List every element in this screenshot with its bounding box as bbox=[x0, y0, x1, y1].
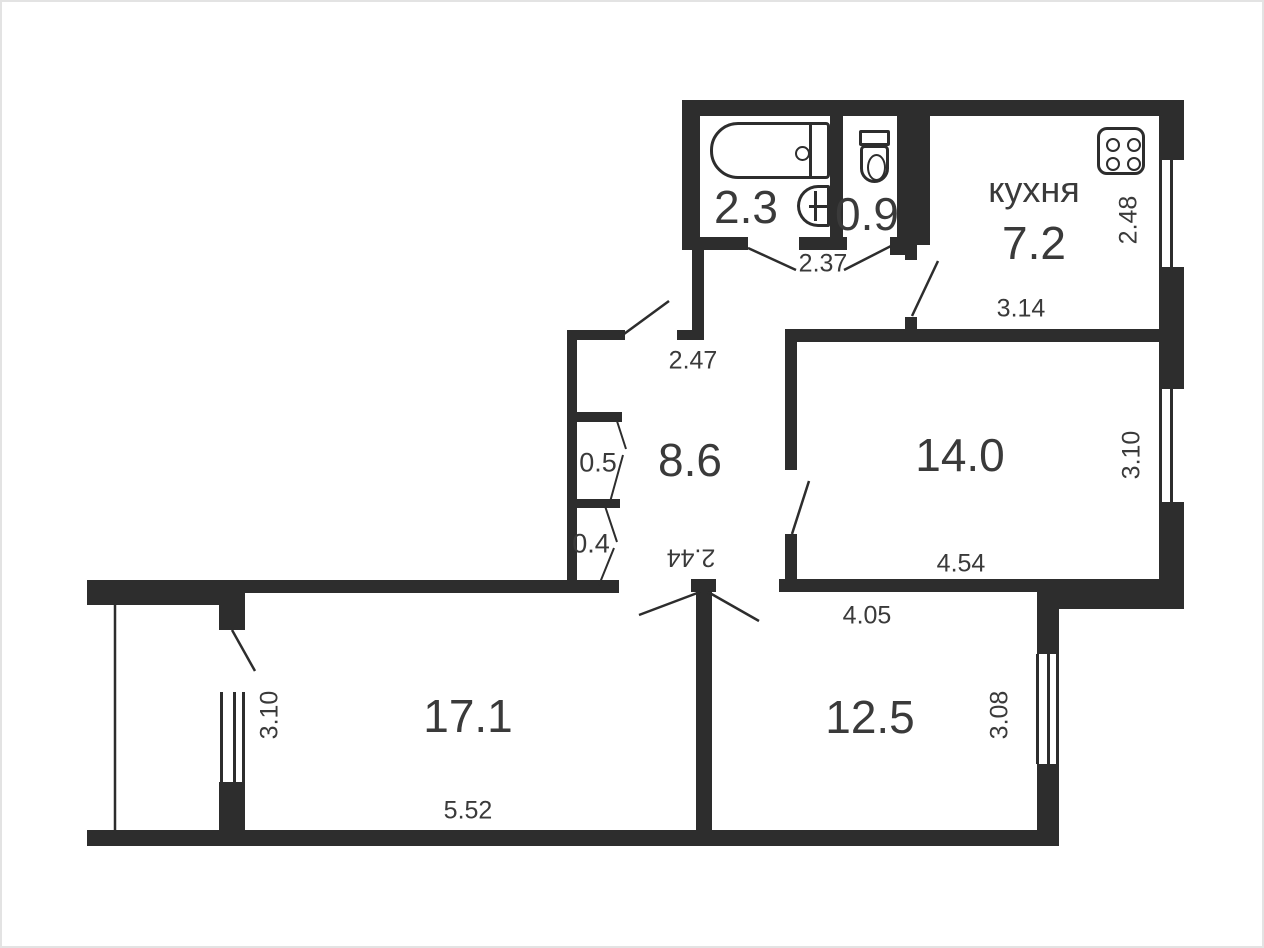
stove-icon bbox=[1097, 127, 1145, 175]
bathtub-icon bbox=[710, 122, 830, 179]
dim-bath-block-width: 2.37 bbox=[799, 252, 848, 277]
room-small-area-label: 12.5 bbox=[825, 694, 915, 740]
room-small-door-swing bbox=[708, 592, 759, 621]
dim-hall-bottom-width: 2.44 bbox=[667, 545, 716, 570]
balcony-door-swing bbox=[232, 630, 255, 671]
lines-overlay bbox=[2, 2, 1264, 948]
bathroom-area-label: 2.3 bbox=[714, 184, 778, 230]
room-medium-area-label: 14.0 bbox=[915, 432, 1005, 478]
wc-area-label: 0.9 bbox=[835, 191, 899, 237]
room-large-area-label: 17.1 bbox=[423, 693, 513, 739]
stove-burner bbox=[1106, 138, 1120, 152]
floor-plan: 2.3 0.9 2.37 кухня 7.2 2.48 3.14 2.47 8.… bbox=[0, 0, 1264, 948]
dim-room-medium-width: 4.54 bbox=[937, 552, 986, 577]
toilet-tank-icon bbox=[859, 130, 890, 146]
sink-line-h bbox=[809, 205, 827, 208]
room-medium-door-swing bbox=[792, 481, 809, 534]
toilet-bowl-inner bbox=[867, 154, 886, 181]
bathtub-drain bbox=[795, 146, 810, 161]
dim-room-small-depth: 3.08 bbox=[988, 691, 1013, 740]
closet-top-area-label: 0.5 bbox=[579, 450, 617, 477]
room-large-door-swing bbox=[639, 592, 700, 615]
closet-bottom-area-label: 0.4 bbox=[572, 531, 610, 558]
hall-area-label: 8.6 bbox=[658, 437, 722, 483]
dim-hall-top-width: 2.47 bbox=[669, 349, 718, 374]
stove-burner bbox=[1127, 157, 1141, 171]
stove-burner bbox=[1106, 157, 1120, 171]
bathroom-door-swing bbox=[748, 248, 796, 270]
toilet-bowl-icon bbox=[860, 145, 889, 183]
kitchen-door-swing bbox=[912, 261, 938, 316]
dim-kitchen-width: 3.14 bbox=[997, 297, 1046, 322]
kitchen-area-label: 7.2 bbox=[1002, 220, 1066, 266]
entrance-door-swing bbox=[624, 301, 669, 334]
wc-door-swing bbox=[844, 246, 891, 270]
dim-room-small-width: 4.05 bbox=[843, 604, 892, 629]
stove-burner bbox=[1127, 138, 1141, 152]
closet-doors bbox=[599, 418, 626, 585]
dim-room-large-width: 5.52 bbox=[444, 799, 493, 824]
kitchen-name-label: кухня bbox=[988, 172, 1080, 208]
dim-room-large-depth: 3.10 bbox=[258, 691, 283, 740]
dim-kitchen-depth: 2.48 bbox=[1117, 196, 1142, 245]
dim-room-medium-depth: 3.10 bbox=[1120, 431, 1145, 480]
room-large-window-lines bbox=[222, 692, 244, 782]
